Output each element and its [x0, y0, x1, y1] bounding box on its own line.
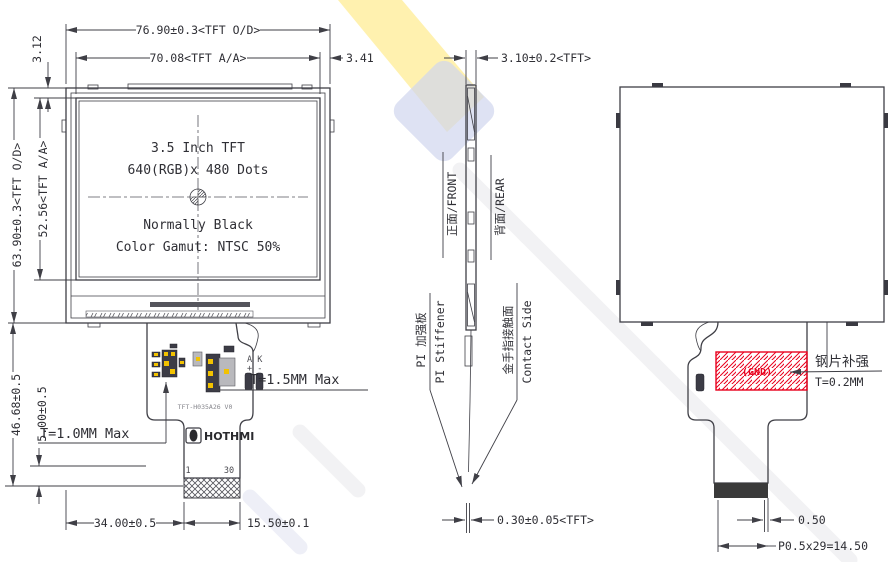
label-steel-t: T=0.2MM	[815, 375, 864, 389]
stiffener-callout: PI 加强板 PI Stiffener	[414, 293, 462, 487]
front-hatch-strip	[86, 311, 253, 317]
gnd-label: (GND)	[742, 367, 772, 378]
tft-lcd-engineering-drawing: 3.5 Inch TFT 640(RGB)x 480 Dots Normally…	[0, 0, 895, 562]
spec-size: 3.5 Inch TFT	[151, 141, 245, 156]
dim-width-aa-label: 70.08<TFT A/A>	[150, 51, 247, 65]
rear-tabs	[616, 83, 888, 326]
rear-component	[696, 374, 704, 391]
front-fpc-components: A K + -	[152, 344, 263, 392]
dim-tail-width: 15.50±0.1	[184, 502, 309, 530]
label-stiffener-en: PI Stiffener	[433, 300, 447, 383]
dim-height-aa-label: 52.56<TFT A/A>	[36, 140, 50, 237]
rear-contact-fingers	[714, 483, 768, 498]
dim-pitch-label: P0.5x29=14.50	[778, 539, 868, 553]
dim-fpc-thickness: 0.30±0.05<TFT>	[442, 503, 594, 533]
watermark	[250, 0, 850, 560]
front-contact-fingers	[184, 478, 240, 498]
dim-height-od-label: 63.90±0.3<TFT O/D>	[10, 143, 24, 268]
label-stiffener-cn: PI 加强板	[414, 312, 428, 368]
dim-height-od: 63.90±0.3<TFT O/D>	[10, 88, 24, 323]
dim-thickness: 3.10±0.2<TFT>	[444, 50, 591, 84]
dim-fpc-drop: 46.68±0.5	[5, 323, 183, 486]
brand-logo: HOTHMI	[186, 428, 254, 443]
dim-width-od-label: 76.90±0.3<TFT O/D>	[136, 23, 261, 37]
spec-resolution: 640(RGB)x 480 Dots	[128, 163, 269, 178]
pin-1-label: 1	[185, 466, 190, 476]
dim-fpc-width-label: 34.00±0.5	[94, 516, 156, 530]
dim-top-gap-label: 3.12	[30, 35, 44, 63]
side-fpc-line	[469, 330, 472, 472]
dim-right-gap-label: 3.41	[346, 51, 374, 65]
pin-30-label: 30	[224, 466, 234, 476]
note-t15: T=1.5MM Max	[212, 372, 368, 390]
brand-logo-text: HOTHMI	[204, 430, 254, 443]
center-mark-icon	[190, 189, 206, 205]
dim-pin-width: 0.50	[737, 498, 826, 532]
dim-right-gap: 3.41	[330, 51, 374, 65]
drawing-canvas: 3.5 Inch TFT 640(RGB)x 480 Dots Normally…	[0, 0, 895, 562]
spec-mode: Normally Black	[143, 218, 253, 233]
rear-module-outline	[620, 87, 884, 322]
dim-thickness-label: 3.10±0.2<TFT>	[501, 51, 591, 65]
rear-fpc-hook	[696, 322, 709, 351]
dim-tail-width-label: 15.50±0.1	[247, 516, 309, 530]
dim-fpc-width: 34.00±0.5	[66, 490, 184, 530]
note-t10-label: T=1.0MM Max	[40, 426, 129, 442]
label-contact-cn: 金手指接触面	[501, 306, 515, 375]
dim-fpc-thickness-label: 0.30±0.05<TFT>	[497, 513, 594, 527]
dim-height-aa: 52.56<TFT A/A>	[34, 98, 76, 280]
rear-view: (GND) 钢片补强 T=0.2MM 0.50 P0.5x29=14.50	[616, 83, 888, 553]
label-front-side: 正面/FRONT	[445, 172, 459, 237]
label-steel-cn: 钢片补强	[815, 354, 869, 370]
part-number: TFT-H035A26 V0	[178, 403, 233, 411]
note-t15-label: T=1.5MM Max	[250, 372, 339, 388]
label-contact-en: Contact Side	[520, 300, 534, 383]
dim-fpc-drop-label: 46.68±0.5	[9, 374, 23, 436]
spec-gamut: Color Gamut: NTSC 50%	[116, 240, 281, 255]
dim-pin-width-label: 0.50	[798, 513, 826, 527]
front-fpc-outline	[147, 323, 253, 478]
front-driver-bar	[150, 302, 250, 307]
contact-side-callout: 金手指接触面 Contact Side	[472, 283, 534, 484]
label-rear-side: 背面/REAR	[493, 178, 507, 236]
